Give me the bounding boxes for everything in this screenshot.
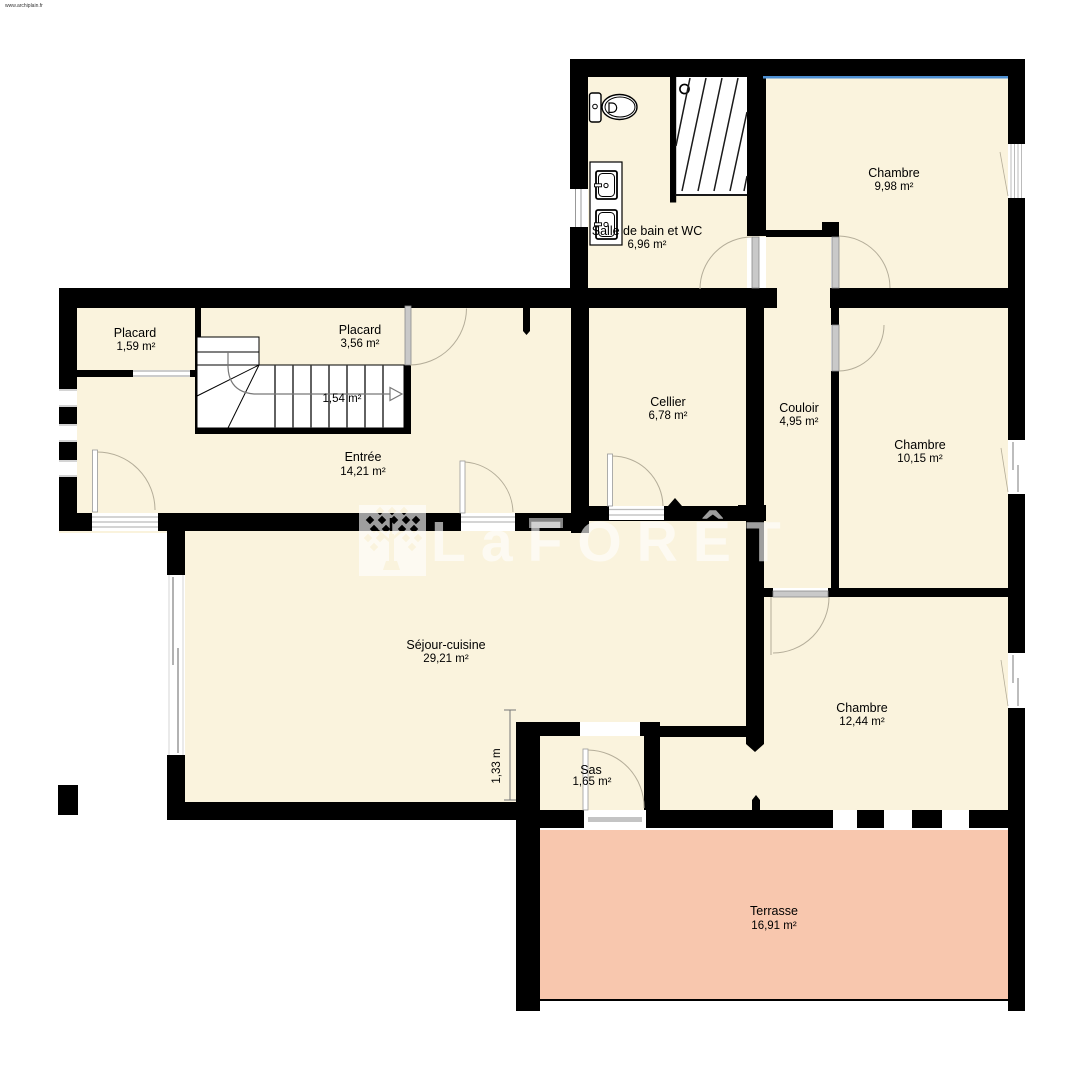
svg-text:4,95 m²: 4,95 m² bbox=[780, 416, 819, 428]
svg-text:Sas: Sas bbox=[580, 763, 602, 777]
svg-text:Couloir: Couloir bbox=[779, 401, 819, 415]
svg-text:Placard: Placard bbox=[114, 326, 156, 340]
svg-text:14,21 m²: 14,21 m² bbox=[340, 466, 386, 478]
svg-text:1,59 m²: 1,59 m² bbox=[117, 341, 156, 353]
svg-text:1,54 m²: 1,54 m² bbox=[323, 393, 362, 405]
svg-text:6,78 m²: 6,78 m² bbox=[649, 410, 688, 422]
svg-text:Entrée: Entrée bbox=[345, 450, 382, 464]
svg-text:10,15 m²: 10,15 m² bbox=[897, 453, 943, 465]
svg-text:9,98 m²: 9,98 m² bbox=[875, 181, 914, 193]
svg-text:Chambre: Chambre bbox=[868, 166, 919, 180]
svg-text:29,21 m²: 29,21 m² bbox=[423, 653, 469, 665]
svg-text:Chambre: Chambre bbox=[836, 701, 887, 715]
svg-text:LaFORÊT: LaFORÊT bbox=[431, 509, 796, 574]
svg-text:6,96 m²: 6,96 m² bbox=[628, 239, 667, 251]
svg-text:1,65 m²: 1,65 m² bbox=[573, 776, 612, 788]
svg-text:Chambre: Chambre bbox=[894, 438, 945, 452]
svg-text:Placard: Placard bbox=[339, 323, 381, 337]
svg-text:3,56 m²: 3,56 m² bbox=[341, 338, 380, 350]
svg-text:12,44 m²: 12,44 m² bbox=[839, 716, 885, 728]
svg-text:Séjour-cuisine: Séjour-cuisine bbox=[406, 638, 485, 652]
svg-text:Salle de bain et WC: Salle de bain et WC bbox=[592, 224, 702, 238]
svg-text:www.archiplain.fr: www.archiplain.fr bbox=[5, 3, 43, 9]
svg-text:Cellier: Cellier bbox=[650, 395, 685, 409]
svg-text:1,33 m: 1,33 m bbox=[491, 748, 503, 783]
svg-text:Terrasse: Terrasse bbox=[750, 904, 798, 918]
svg-text:16,91 m²: 16,91 m² bbox=[751, 920, 797, 932]
